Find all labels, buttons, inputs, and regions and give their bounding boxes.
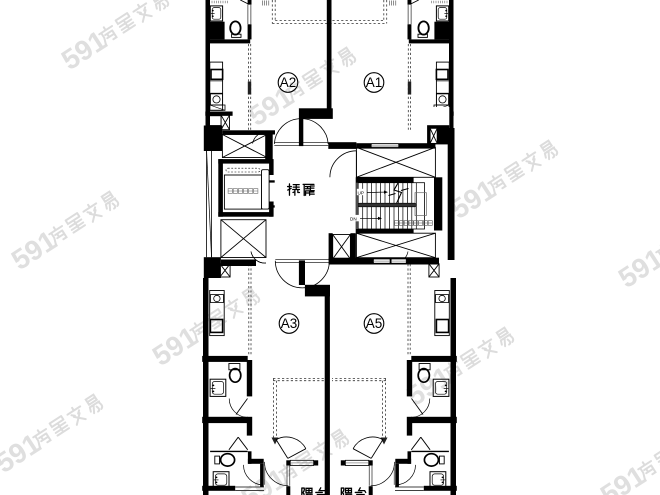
- svg-text:A1: A1: [366, 75, 383, 90]
- svg-text:DN: DN: [350, 216, 357, 221]
- svg-text:A3: A3: [281, 316, 298, 331]
- svg-text:A5: A5: [366, 316, 383, 331]
- svg-text:UP: UP: [358, 190, 364, 195]
